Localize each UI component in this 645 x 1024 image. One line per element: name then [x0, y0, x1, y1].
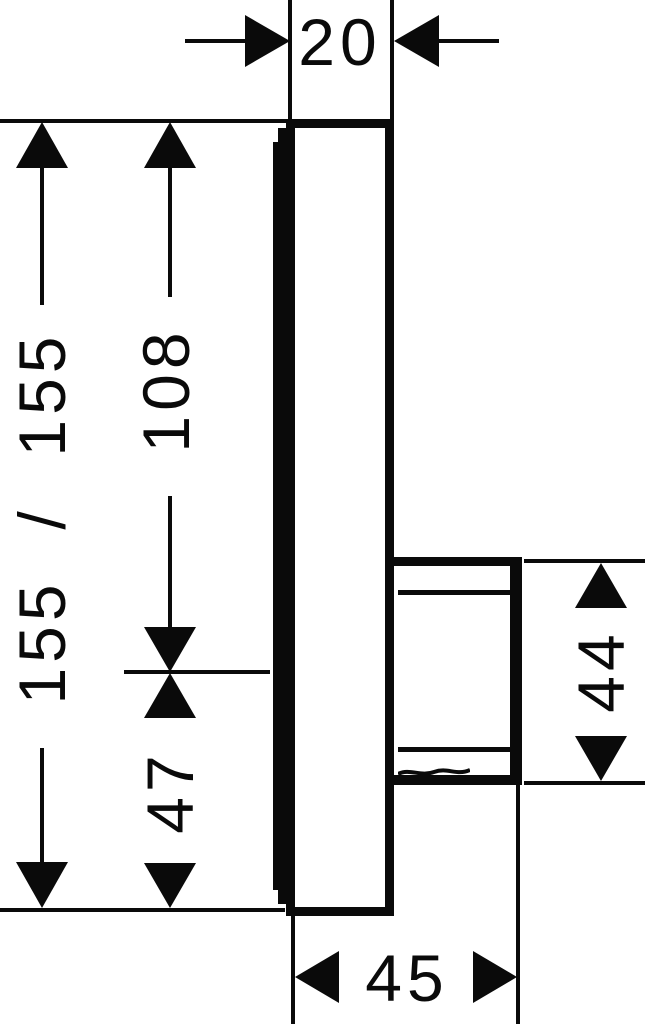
ext-line-45-right: [516, 785, 520, 1024]
leader-108-top: [168, 166, 172, 297]
arrowhead-44-bottom-icon: [575, 736, 627, 781]
ext-line-44-bottom: [524, 781, 645, 785]
ext-line-20-right: [390, 0, 394, 121]
leader-108-bottom: [168, 496, 172, 629]
faceplate-profile: [286, 119, 394, 916]
wall-flange-strip-top-step: [278, 128, 286, 144]
ext-line-plate-bottom: [0, 908, 285, 912]
arrowhead-155-top-icon: [16, 122, 68, 168]
leader-20-left: [185, 39, 247, 43]
dimension-label-body-depth: 45: [365, 945, 448, 1011]
technical-drawing-canvas: 20 155 / 155 108 47 44 45: [0, 0, 645, 1024]
arrowhead-44-top-icon: [575, 563, 627, 608]
leader-20-right: [437, 39, 499, 43]
arrowhead-47-top-icon: [144, 673, 196, 718]
dimension-label-plate-height: 155 / 155: [9, 331, 75, 704]
leader-155-bottom: [40, 748, 44, 864]
arrowhead-45-right-icon: [473, 951, 517, 1003]
wall-flange-strip: [273, 142, 286, 890]
leader-155-top: [40, 166, 44, 305]
ext-line-45-left: [291, 916, 295, 1024]
valve-axis-tick: [124, 670, 270, 674]
ext-line-plate-top: [0, 119, 290, 123]
wall-flange-strip-bottom-step: [278, 888, 286, 904]
arrowhead-20-right-icon: [394, 15, 439, 67]
arrowhead-108-bottom-icon: [144, 627, 196, 672]
arrowhead-155-bottom-icon: [16, 862, 68, 908]
dimension-label-body-height: 44: [568, 629, 634, 712]
valve-body-inner-bottom-line: [398, 747, 510, 752]
arrowhead-47-bottom-icon: [144, 863, 196, 908]
valve-body-seam-squiggle: [398, 764, 470, 780]
valve-body-inner-top-line: [398, 590, 510, 595]
arrowhead-108-top-icon: [144, 122, 196, 168]
dimension-label-plate-thickness: 20: [298, 9, 381, 75]
arrowhead-20-left-icon: [245, 15, 290, 67]
dimension-label-center-from-bottom: 47: [137, 750, 203, 833]
ext-line-44-top: [524, 559, 645, 563]
ext-line-20-left: [288, 0, 292, 121]
arrowhead-45-left-icon: [295, 951, 339, 1003]
dimension-label-center-from-top: 108: [133, 327, 199, 452]
